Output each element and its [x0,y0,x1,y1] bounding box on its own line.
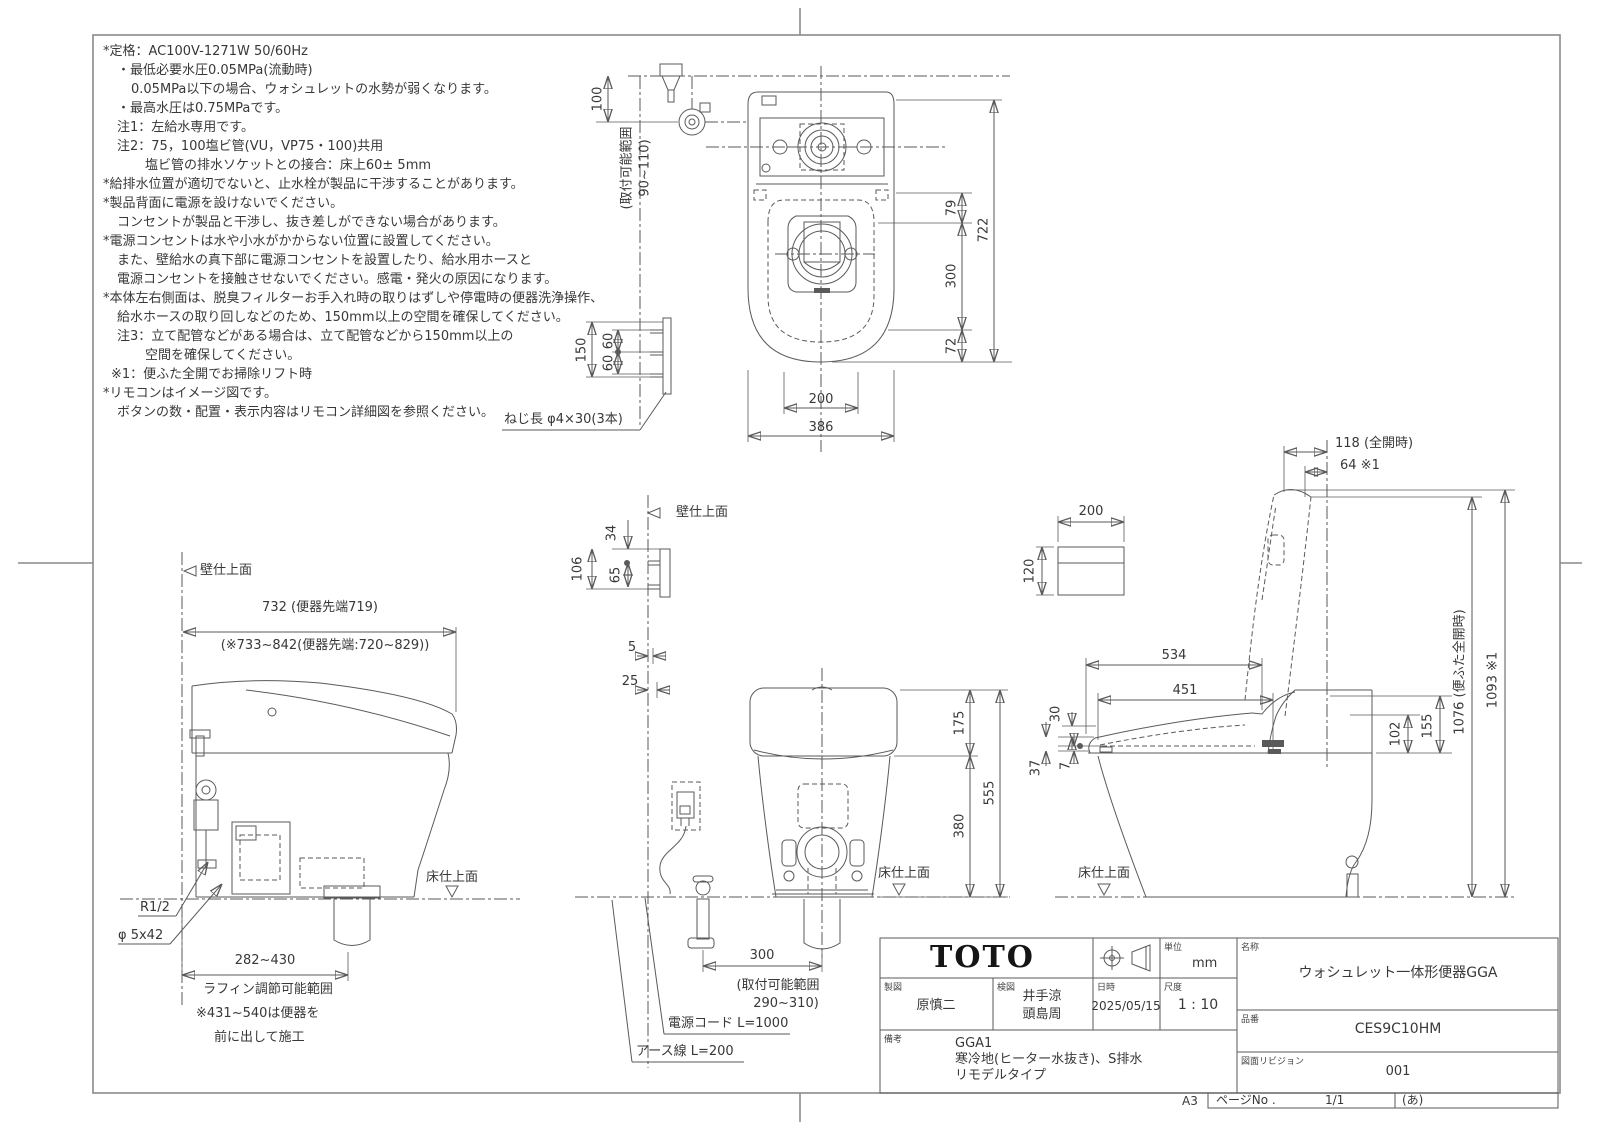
name-label: 名称 [1241,941,1259,956]
revision-label: 図面リビジョン [1241,1055,1304,1070]
note-line: 塩ビ管の排水ソケットとの接合：床上60± 5mm [145,156,431,175]
date-label: 日時 [1097,981,1115,996]
unit-label: 単位 [1164,941,1182,956]
note-line: 給水ホースの取り回しなどのため、150mm以上の空間を確保してください。 [117,308,569,327]
checker-name: 井手涼 [1022,989,1061,1004]
dim-label-79: 79 [945,200,960,217]
remarks-label: 備考 [884,1033,902,1048]
page-note: (あ) [1402,1093,1423,1108]
screw-label: φ 5x42 [118,928,163,943]
revision-value: 001 [1386,1064,1411,1079]
dim-label-300: 300 [750,948,775,963]
remarks-line: GGA1 [955,1036,992,1051]
dim-label-100: 100 [591,87,606,112]
dim-label-34: 34 [605,525,620,542]
unit-value: mm [1192,956,1217,971]
dim-label-106: 106 [571,557,586,582]
dim-label-5: 5 [628,640,636,655]
part-number: CES9C10HM [1355,1022,1442,1037]
note-line: コンセントが製品と干渉し、抜き差しができない場合があります。 [117,213,506,232]
note-line: ・最低必要水圧0.05MPa(流動時) [117,61,313,80]
note-line: 注2：75，100塩ビ管(VU，VP75・100)共用 [117,137,383,156]
dim-label-72: 72 [945,338,960,355]
dim-label-722: 722 [977,218,992,243]
remarks-line: リモデルタイプ [955,1068,1046,1083]
dim-label-534: 534 [1162,648,1187,663]
mount-range-label: 90~110) [638,139,653,196]
dim-label-64: 64 ※1 [1340,458,1380,473]
dim-label-60: 60 [602,333,617,350]
note-line: ・最高水圧は0.75MPaです。 [117,99,288,118]
dim-label-depth: 732 (便器先端719) [262,600,378,615]
wall-finish-label: 壁仕上面 [200,563,252,578]
product-name: ウォシュレット一体形便器GGA [1299,966,1498,981]
dim-label-30: 30 [1049,706,1064,723]
part-number-label: 品番 [1241,1013,1259,1028]
dim-label-380: 380 [953,814,968,839]
note-line: 電源コンセントを接触させないでください。感電・発火の原因になります。 [117,270,557,289]
dim-label-1093: 1093 ※1 [1486,652,1501,708]
dim-label-150: 150 [575,338,590,363]
scale-label: 尺度 [1164,981,1182,996]
note-line: *リモコンはイメージ図です。 [103,384,277,403]
note-line: *電源コンセントは水や小水がかからない位置に設置してください。 [103,232,499,251]
rough-in-range-label: ラフィン調節可能範囲 [203,982,333,997]
rough-in-note: ※431~540は便器を [196,1006,319,1021]
note-line: 注1：左給水専用です。 [117,118,254,137]
dim-label-rough-in: 282~430 [235,953,296,968]
page-value: 1/1 [1325,1093,1344,1108]
dim-label-25: 25 [622,674,639,689]
dim-label-300: 300 [945,264,960,289]
floor-finish-label: 床仕上面 [1078,866,1130,881]
floor-finish-label: 床仕上面 [878,866,930,881]
dim-label-102: 102 [1389,722,1404,747]
mount-range-label: 290~310) [753,996,819,1011]
drawing-sheet: *定格：AC100V-1271W 50/60Hz ・最低必要水圧0.05MPa(… [0,0,1600,1131]
dim-label-1076: 1076 (便ふた全開時) [1453,609,1468,734]
note-line: 空間を確保してください。 [145,346,300,365]
rough-in-note: 前に出して施工 [214,1030,305,1045]
note-line: *給排水位置が適切でないと、止水栓が製品に干渉することがあります。 [103,175,524,194]
mount-range-label: (取付可能範囲 [620,126,635,209]
dim-label-7: 7 [1059,762,1074,770]
screw-length-note: ねじ長 φ4×30(3本) [504,412,623,427]
dim-label-120: 120 [1023,559,1038,584]
dim-label-200: 200 [809,392,834,407]
page-label: ページNo . [1216,1093,1276,1108]
note-line: *定格：AC100V-1271W 50/60Hz [103,42,308,61]
dim-label-depth-alt: (※733~842(便器先端:720~829)) [221,638,430,653]
thread-label: R1/2 [140,900,170,915]
floor-finish-label: 床仕上面 [426,870,478,885]
note-line: また、壁給水の真下部に電源コンセントを設置したり、給水用ホースと [117,251,532,270]
dim-label-60: 60 [602,355,617,372]
dim-label-37: 37 [1029,760,1044,777]
scale-value: 1 : 10 [1178,998,1218,1013]
dim-label-200: 200 [1079,504,1104,519]
note-line: *本体左右側面は、脱臭フィルターお手入れ時の取りはずしや停電時の便器洗浄操作、 [103,289,603,308]
dim-label-118: 118 (全開時) [1335,436,1413,451]
checker-name: 頭島周 [1022,1007,1061,1022]
dim-label-155: 155 [1421,714,1436,739]
dim-label-175: 175 [953,711,968,736]
dim-label-65: 65 [609,567,624,584]
mount-range-label: (取付可能範囲 [736,978,819,993]
note-line: 0.05MPa以下の場合、ウォシュレットの水勢が弱くなります。 [131,80,497,99]
toto-logo: TOTO [930,940,1035,975]
dim-label-451: 451 [1173,683,1198,698]
date-value: 2025/05/15 [1091,999,1160,1014]
power-cord-label: 電源コード L=1000 [668,1016,788,1031]
wall-finish-label: 壁仕上面 [676,505,728,520]
dim-label-386: 386 [809,420,834,435]
earth-wire-label: アース線 L=200 [636,1044,734,1059]
drafter-name: 原慎二 [916,998,955,1013]
note-line: *製品背面に電源を設けないでください。 [103,194,343,213]
dim-label-555: 555 [983,781,998,806]
note-line: 注3：立て配管などがある場合は、立て配管などから150mm以上の [117,327,513,346]
sheet-size: A3 [1182,1094,1198,1109]
remarks-line: 寒冷地(ヒーター水抜き)、S排水 [955,1052,1142,1067]
note-line: ボタンの数・配置・表示内容はリモコン詳細図を参照ください。 [117,403,494,422]
note-line: ※1：便ふた全開でお掃除リフト時 [111,365,312,384]
drafter-label: 製図 [884,981,902,996]
checker-label: 検図 [997,981,1015,996]
